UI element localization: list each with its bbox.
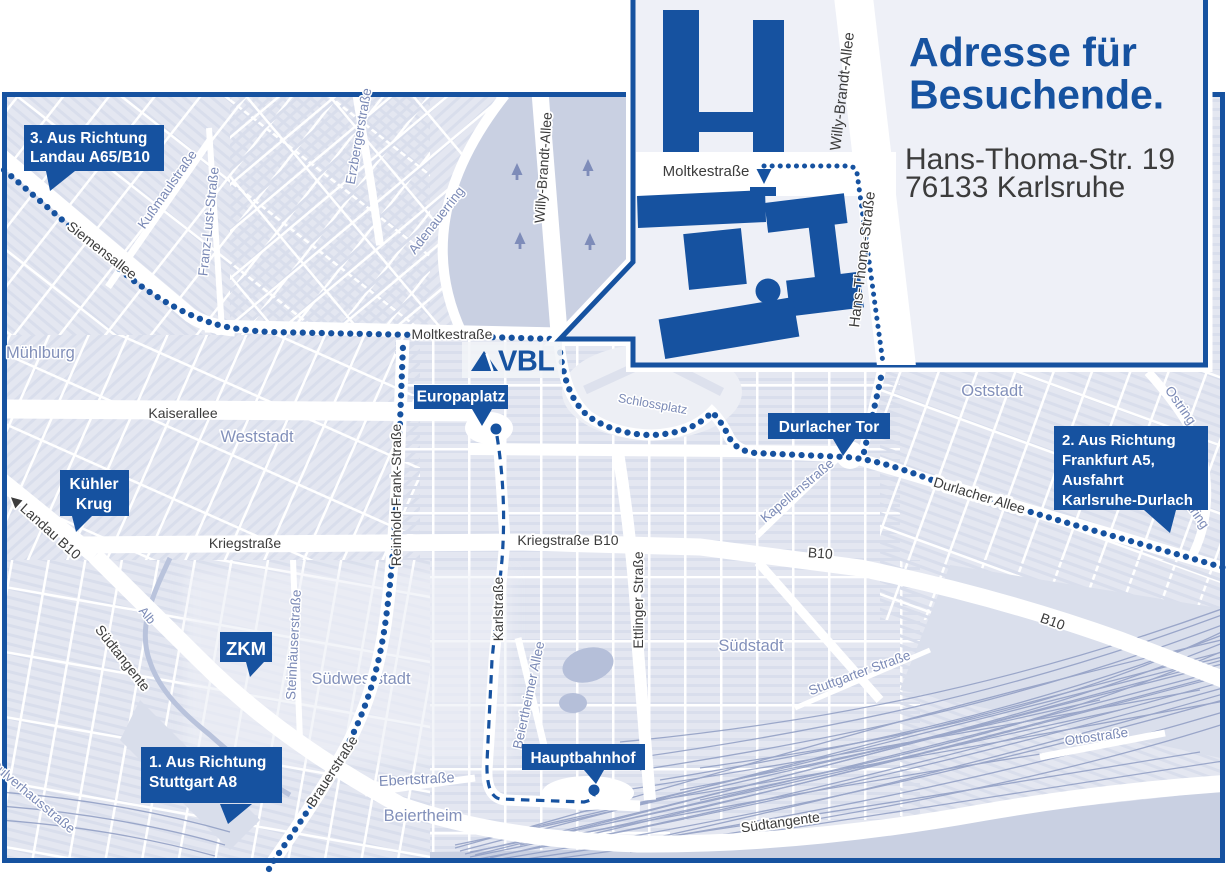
svg-text:Hauptbahnhof: Hauptbahnhof [530,750,636,767]
svg-text:Kaiserallee: Kaiserallee [148,405,217,421]
svg-text:Besuchende.: Besuchende. [909,72,1164,118]
svg-text:76133 Karlsruhe: 76133 Karlsruhe [905,171,1125,204]
svg-text:Ausfahrt: Ausfahrt [1062,472,1124,489]
svg-text:Europaplatz: Europaplatz [417,389,506,406]
svg-text:Karlsruhe-Durlach: Karlsruhe-Durlach [1062,492,1193,509]
svg-text:Moltkestraße: Moltkestraße [663,163,750,180]
svg-text:Frankfurt A5,: Frankfurt A5, [1062,452,1155,469]
svg-text:Krug: Krug [76,496,112,513]
svg-text:Oststadt: Oststadt [961,382,1023,400]
svg-text:Reinhold-Frank-Straße: Reinhold-Frank-Straße [388,424,404,567]
svg-text:Stuttgart A8: Stuttgart A8 [149,774,237,791]
svg-text:Südstadt: Südstadt [718,637,784,655]
svg-text:Moltkestraße: Moltkestraße [412,326,493,342]
svg-text:3. Aus Richtung: 3. Aus Richtung [30,130,147,147]
svg-text:Ettlinger Straße: Ettlinger Straße [630,551,646,648]
svg-text:Beiertheim: Beiertheim [384,807,463,825]
svg-text:Mühlburg: Mühlburg [6,344,75,362]
svg-text:Kühler: Kühler [69,476,118,493]
svg-text:B10: B10 [807,544,833,562]
svg-text:1. Aus Richtung: 1. Aus Richtung [149,754,266,771]
svg-text:Durlacher Tor: Durlacher Tor [779,419,880,436]
svg-text:ZKM: ZKM [226,638,266,659]
svg-text:Südweststadt: Südweststadt [311,670,410,688]
svg-text:Kriegstraße B10: Kriegstraße B10 [517,532,618,548]
svg-text:2. Aus Richtung: 2. Aus Richtung [1062,432,1176,449]
svg-text:Landau A65/B10: Landau A65/B10 [30,149,150,166]
svg-text:Weststadt: Weststadt [220,428,293,446]
svg-text:Karlstraße: Karlstraße [490,577,506,642]
svg-text:Adresse für: Adresse für [909,29,1137,75]
svg-text:VBL: VBL [498,346,555,378]
svg-text:Kriegstraße: Kriegstraße [209,535,282,551]
